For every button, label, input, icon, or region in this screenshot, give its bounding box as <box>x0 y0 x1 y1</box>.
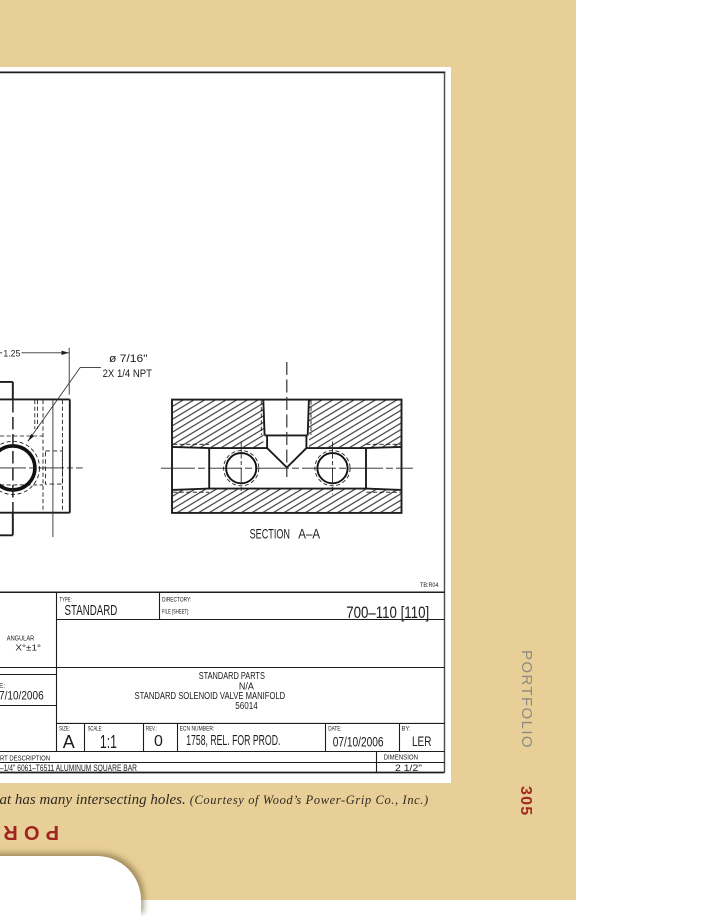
svg-text:ECN NUMBER:: ECN NUMBER: <box>180 726 215 733</box>
svg-text:REV.:: REV.: <box>146 726 157 733</box>
svg-text:2X 1/4 NPT: 2X 1/4 NPT <box>103 368 153 380</box>
svg-text:A–A: A–A <box>298 526 320 542</box>
svg-text:DATE:: DATE: <box>328 726 342 733</box>
svg-text:FILE [SHEET]:: FILE [SHEET]: <box>162 608 189 615</box>
svg-text:STANDARD PARTS: STANDARD PARTS <box>199 671 265 682</box>
svg-text:ANGULAR: ANGULAR <box>7 634 34 643</box>
svg-text:STANDARD SOLENOID VALVE MANIFO: STANDARD SOLENOID VALVE MANIFOLD <box>135 690 286 702</box>
svg-text:LER: LER <box>412 733 431 749</box>
svg-text:SECTION: SECTION <box>250 526 290 542</box>
svg-text:1:1: 1:1 <box>100 732 117 752</box>
svg-text:1758, REL. FOR PROD.: 1758, REL. FOR PROD. <box>186 733 280 749</box>
svg-text:DIMENSION: DIMENSION <box>384 752 418 761</box>
svg-text:DIRECTORY:: DIRECTORY: <box>162 597 191 604</box>
svg-text:STANDARD: STANDARD <box>65 602 118 619</box>
svg-text:X°±1°: X°±1° <box>15 644 41 653</box>
svg-text:A: A <box>63 732 75 752</box>
svg-text:1.25: 1.25 <box>3 348 20 359</box>
svg-text:07/10/2006: 07/10/2006 <box>333 733 384 749</box>
svg-text:2 1/2": 2 1/2" <box>395 763 422 773</box>
svg-text:700–110 [110]: 700–110 [110] <box>346 604 429 622</box>
svg-text:56014: 56014 <box>235 700 258 712</box>
svg-text:RT DESCRIPTION: RT DESCRIPTION <box>0 753 50 762</box>
svg-text:–1/4" 6061–T6511 ALUMINUM SQ: –1/4" 6061–T6511 ALUMINUM SQUARE BAR <box>0 763 137 773</box>
svg-text:BY:: BY: <box>402 726 411 733</box>
svg-text:0: 0 <box>154 733 163 750</box>
svg-text:TB:R04: TB:R04 <box>420 582 439 589</box>
svg-text:ø 7/16": ø 7/16" <box>109 353 148 365</box>
svg-text:7/10/2006: 7/10/2006 <box>0 689 44 703</box>
